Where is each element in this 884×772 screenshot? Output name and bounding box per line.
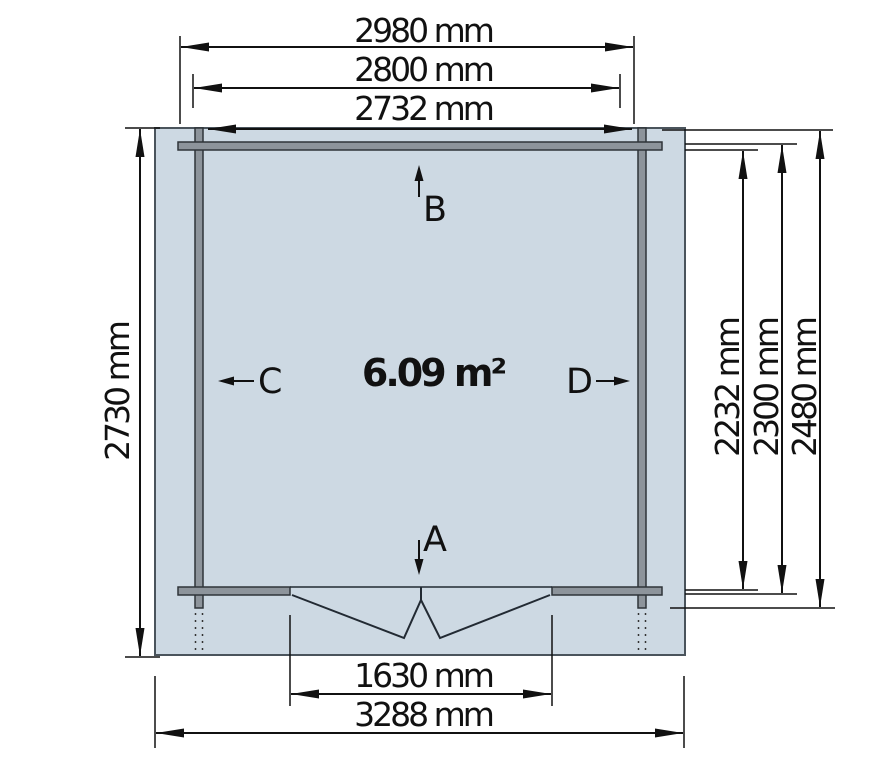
wall-top <box>178 142 662 150</box>
label-d: D <box>566 362 593 402</box>
arrow-down-icon <box>739 561 748 589</box>
label-b: B <box>423 190 447 230</box>
wall-left <box>195 128 203 608</box>
dim-label-right-middle: 2300 mm <box>747 318 786 457</box>
arrow-right-icon <box>591 84 619 93</box>
dimensions-right: 2232 mm 2300 mm 2480 mm <box>662 130 835 608</box>
dim-label-bottom-outer: 3288 mm <box>354 695 493 734</box>
floor-plan-drawing: 2980 mm 2800 mm 2732 mm 2730 mm 2232 mm … <box>0 0 884 772</box>
floor-plan-screenshot: 2980 mm 2800 mm 2732 mm 2730 mm 2232 mm … <box>0 0 884 772</box>
dim-label-top-middle: 2800 mm <box>354 50 493 89</box>
arrow-left-icon <box>156 729 184 738</box>
dimensions-left: 2730 mm <box>98 128 160 657</box>
dimensions-top: 2980 mm 2800 mm 2732 mm <box>180 11 634 134</box>
arrow-left-icon <box>291 690 319 699</box>
arrow-left-icon <box>181 43 209 52</box>
arrow-up-icon <box>778 145 787 173</box>
arrow-left-icon <box>194 84 222 93</box>
label-a: A <box>423 520 447 560</box>
dim-label-bottom-door: 1630 mm <box>354 656 493 695</box>
arrow-right-icon <box>523 690 551 699</box>
wall-right <box>638 128 646 608</box>
arrow-down-icon <box>816 579 825 607</box>
arrow-down-icon <box>778 565 787 593</box>
label-c: C <box>258 362 282 402</box>
dim-label-top-outer: 2980 mm <box>354 11 493 50</box>
wall-bottom-right-segment <box>552 587 662 595</box>
dim-label-top-inner: 2732 mm <box>354 89 493 128</box>
arrow-up-icon <box>136 129 145 157</box>
wall-bottom-left-segment <box>178 587 290 595</box>
arrow-up-icon <box>816 131 825 159</box>
arrow-down-icon <box>136 628 145 656</box>
dim-label-left: 2730 mm <box>98 322 137 461</box>
dim-label-right-inner: 2232 mm <box>708 318 747 457</box>
arrow-right-icon <box>605 43 633 52</box>
arrow-right-icon <box>655 729 683 738</box>
floor-area-label: 6.09 m² <box>362 351 506 395</box>
dim-label-right-outer: 2480 mm <box>785 318 824 457</box>
arrow-up-icon <box>739 151 748 179</box>
